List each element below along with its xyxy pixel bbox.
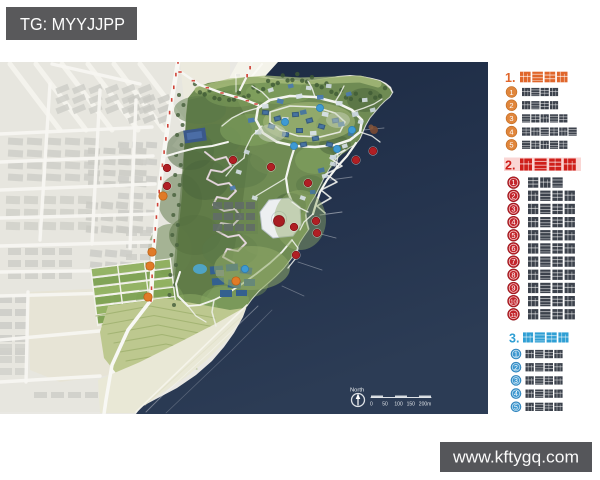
svg-text:10: 10 [510,300,516,306]
svg-text:9: 9 [511,284,515,293]
svg-text:1: 1 [514,352,518,359]
svg-text:6: 6 [511,244,515,253]
svg-text:2: 2 [509,101,513,110]
svg-text:7: 7 [511,257,515,266]
svg-text:1.: 1. [505,71,515,85]
svg-text:3.: 3. [509,332,519,346]
svg-text:5: 5 [511,231,515,240]
svg-text:150: 150 [407,402,416,408]
svg-text:4: 4 [514,391,518,398]
svg-text:North: North [350,388,364,394]
svg-text:4: 4 [511,218,515,227]
svg-text:3: 3 [514,378,518,385]
svg-text:11: 11 [510,313,516,319]
svg-text:4: 4 [509,127,513,136]
svg-text:200m: 200m [419,402,432,408]
svg-text:50: 50 [382,402,388,408]
svg-text:3: 3 [509,114,513,123]
svg-text:2: 2 [511,191,515,200]
svg-text:TG: MYYJJPP: TG: MYYJJPP [20,14,125,34]
svg-text:www.kftygq.com: www.kftygq.com [452,449,579,467]
svg-text:1: 1 [511,178,515,187]
svg-text:2: 2 [514,365,518,372]
svg-text:1: 1 [509,88,513,97]
svg-text:8: 8 [511,270,515,279]
svg-text:5: 5 [514,404,518,411]
svg-text:5: 5 [509,141,513,150]
svg-text:100: 100 [394,402,403,408]
svg-text:2.: 2. [505,159,515,173]
svg-text:0: 0 [370,402,373,408]
svg-text:3: 3 [511,205,515,214]
